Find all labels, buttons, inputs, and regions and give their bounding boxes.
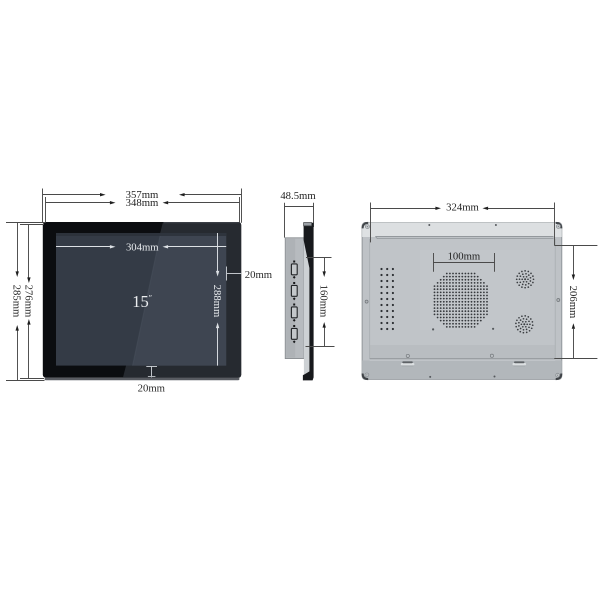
svg-text:304mm: 304mm — [126, 242, 159, 254]
svg-text:206mm: 206mm — [567, 286, 579, 319]
svg-text:348mm: 348mm — [126, 197, 159, 209]
svg-text:160mm: 160mm — [318, 285, 330, 318]
svg-text:100mm: 100mm — [448, 250, 481, 262]
svg-text:276mm: 276mm — [22, 285, 34, 318]
svg-text:48.5mm: 48.5mm — [280, 190, 316, 202]
svg-text:288mm: 288mm — [211, 285, 223, 318]
svg-text:20mm: 20mm — [138, 383, 166, 395]
svg-text:324mm: 324mm — [446, 201, 479, 213]
svg-text:20mm: 20mm — [245, 269, 273, 281]
svg-text:285mm: 285mm — [11, 285, 23, 318]
